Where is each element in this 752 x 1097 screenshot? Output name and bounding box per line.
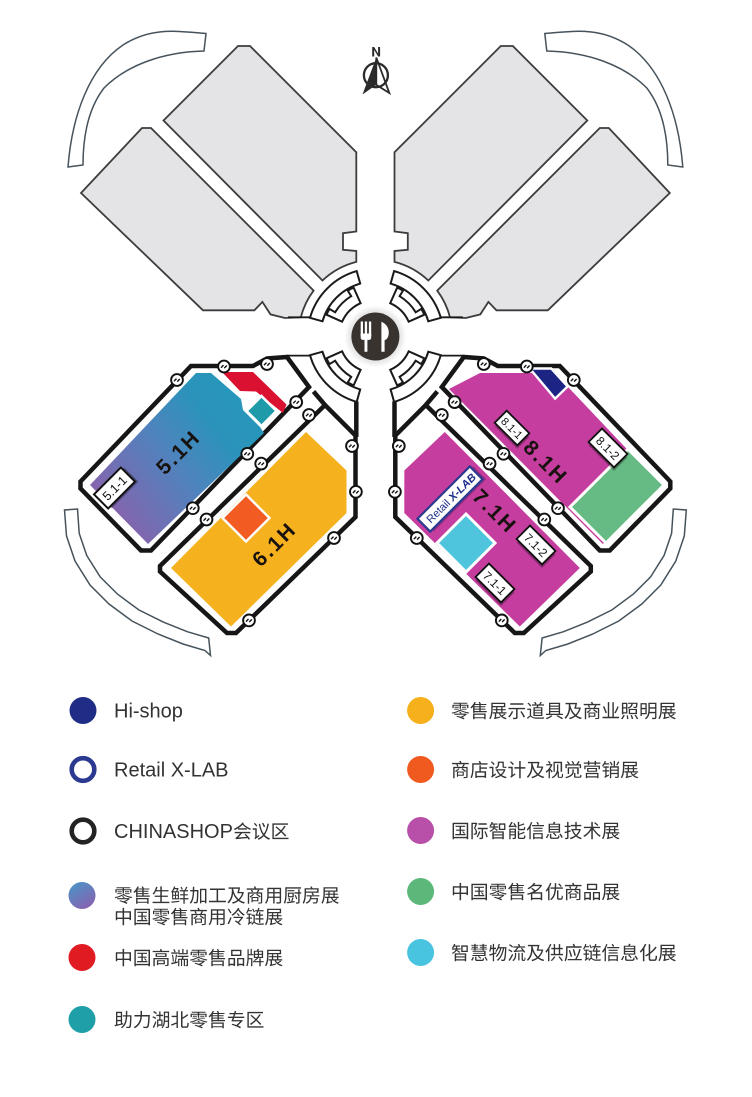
svg-text:Hi-shop: Hi-shop [114,701,183,723]
svg-text:Retail X-LAB: Retail X-LAB [114,760,229,782]
svg-text:CHINASHOP: CHINASHOP [114,821,233,843]
